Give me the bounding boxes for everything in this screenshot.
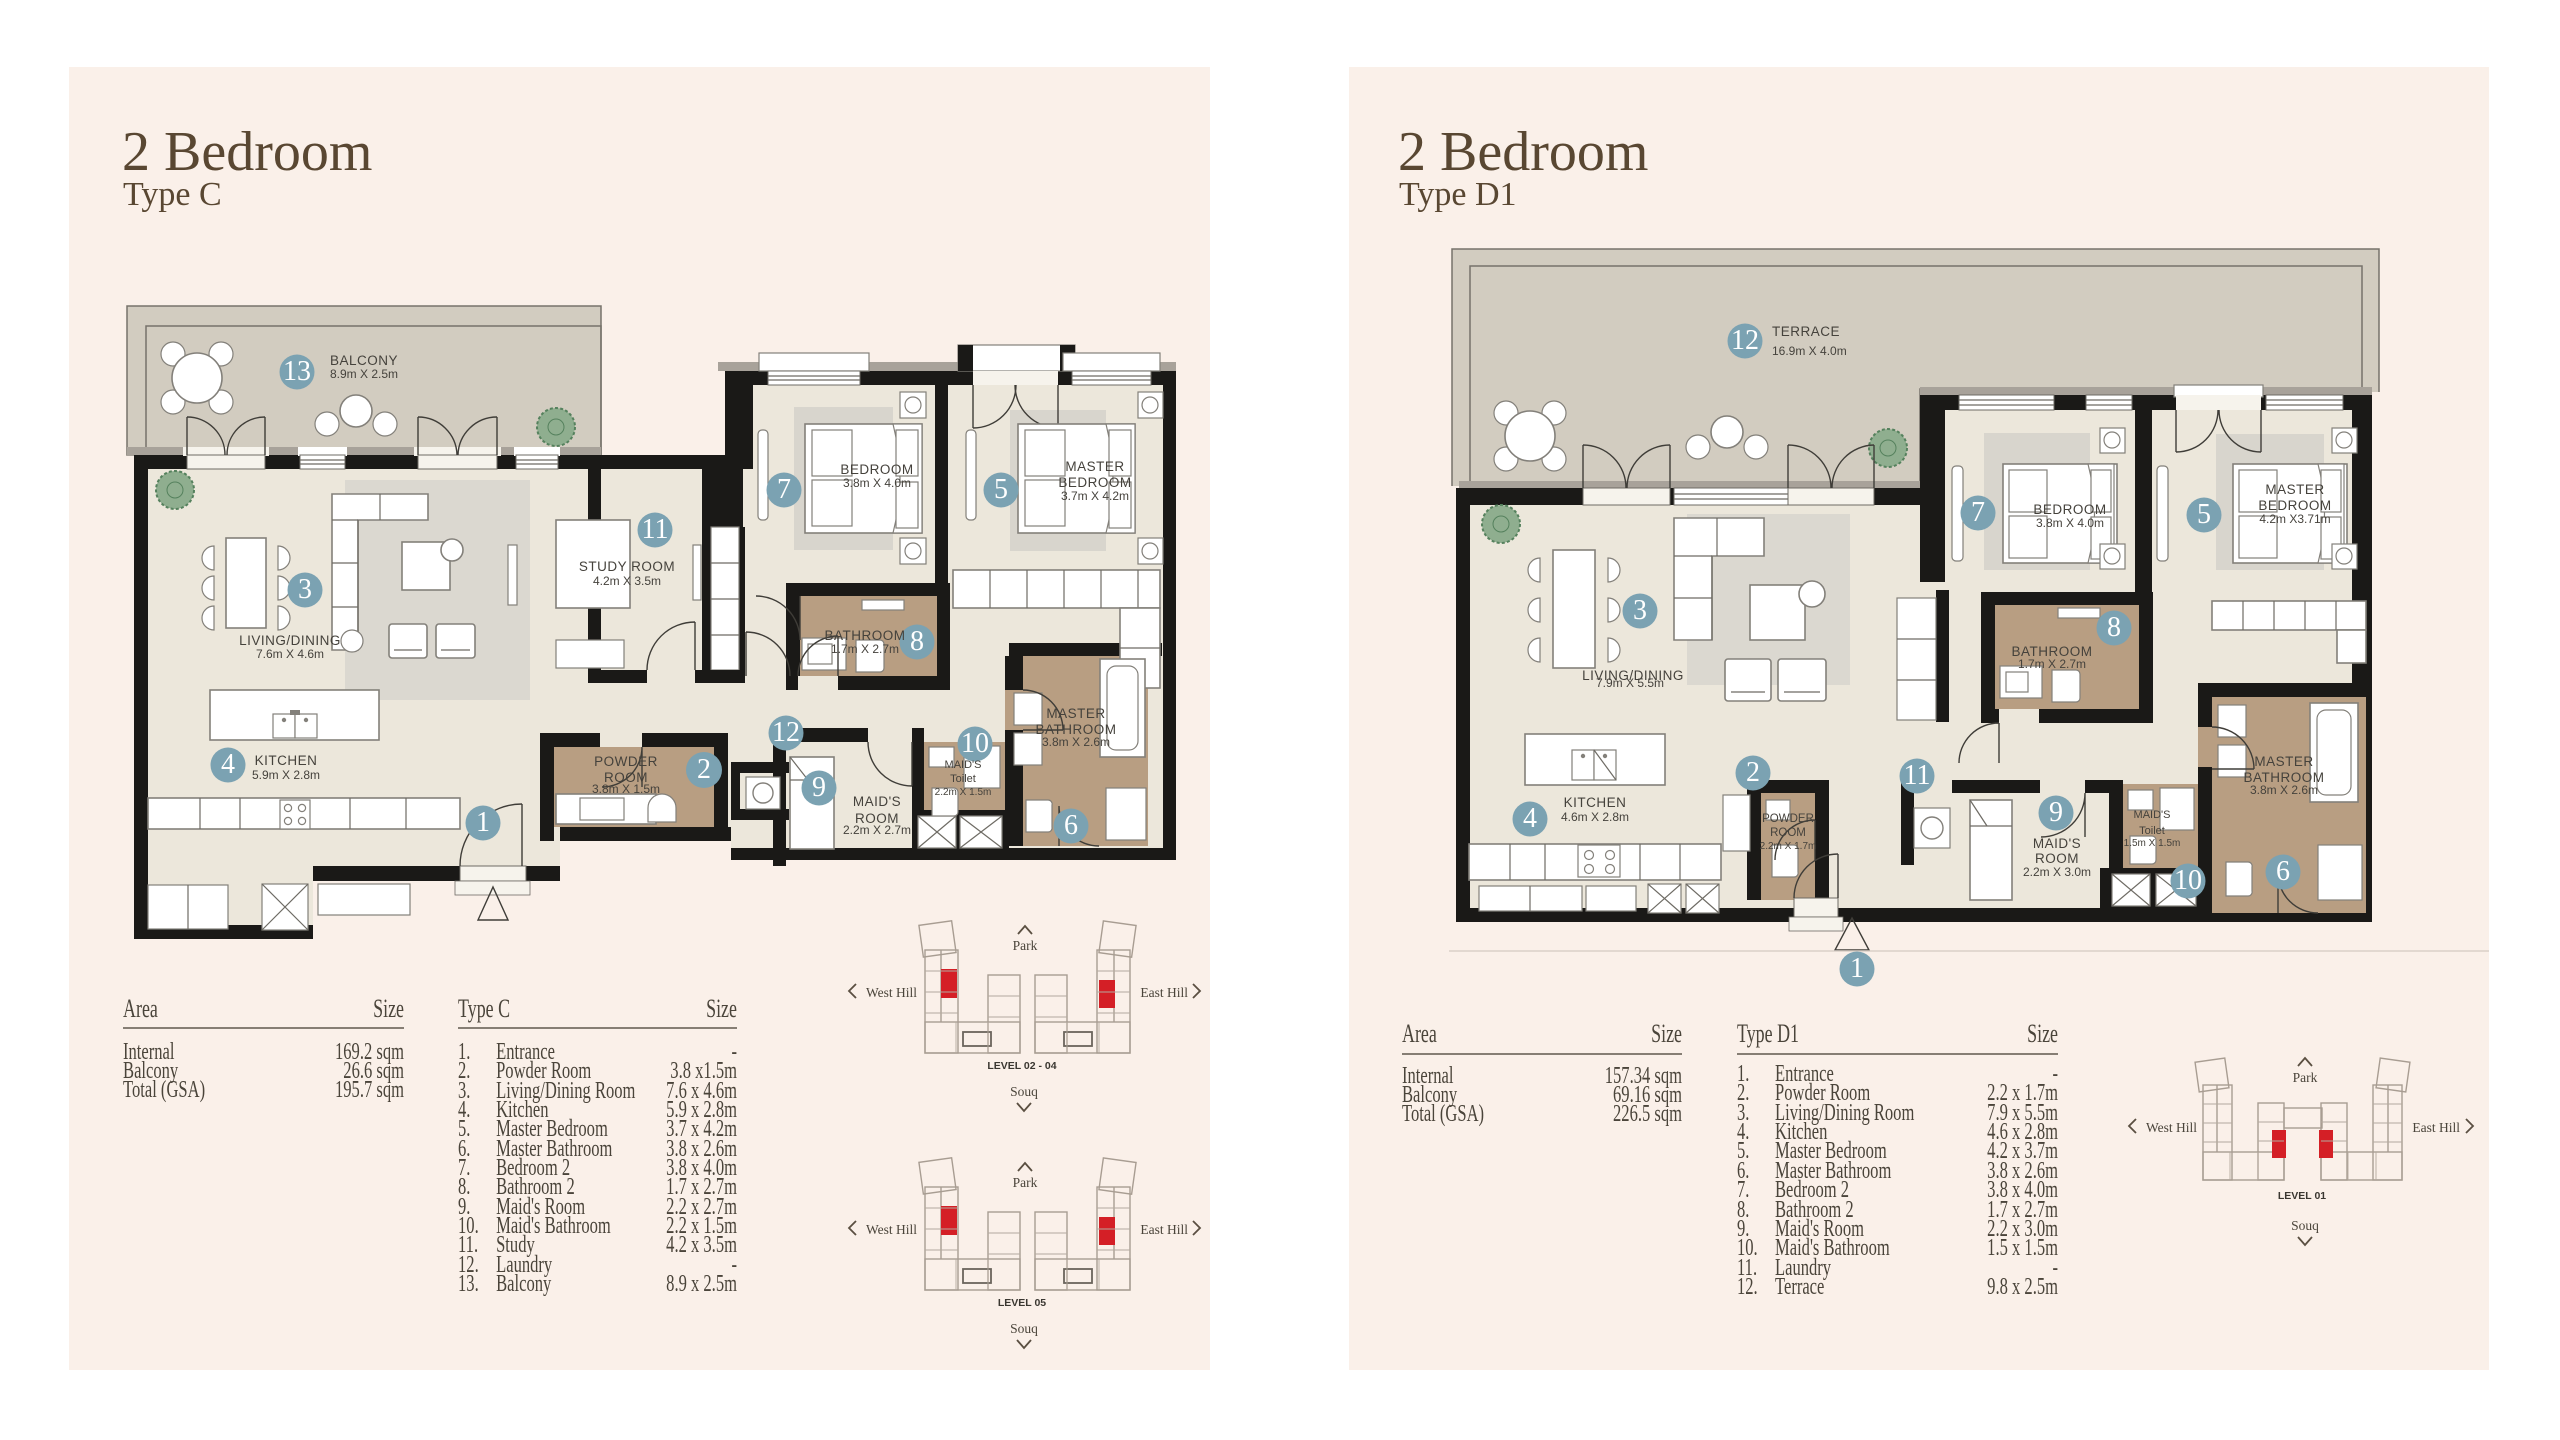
svg-text:POWDER: POWDER (594, 754, 658, 769)
svg-text:Park: Park (1013, 1175, 1038, 1190)
svg-text:LIVING/DINING: LIVING/DINING (239, 633, 341, 648)
svg-text:Size: Size (1651, 1019, 1682, 1048)
svg-text:MAID'S: MAID'S (853, 794, 901, 809)
svg-text:10: 10 (961, 728, 989, 759)
svg-text:Type D1: Type D1 (1737, 1019, 1799, 1048)
svg-text:9: 9 (812, 772, 826, 803)
svg-text:4.2 x 3.5m: 4.2 x 3.5m (666, 1232, 737, 1258)
svg-text:12.: 12. (1737, 1274, 1758, 1300)
svg-text:POWDER: POWDER (1762, 813, 1814, 825)
svg-text:2.2m X 3.0m: 2.2m X 3.0m (2023, 865, 2091, 879)
svg-text:MASTER: MASTER (1065, 459, 1124, 474)
svg-text:ROOM: ROOM (2035, 851, 2079, 866)
svg-text:Type C: Type C (123, 176, 222, 213)
svg-text:Balcony: Balcony (496, 1271, 552, 1297)
svg-text:7.9m X 5.5m: 7.9m X 5.5m (1596, 676, 1664, 690)
svg-text:MAID'S: MAID'S (945, 759, 982, 771)
svg-text:Type C: Type C (458, 994, 510, 1023)
svg-text:5: 5 (994, 474, 1008, 505)
svg-text:Terrace: Terrace (1775, 1274, 1824, 1300)
svg-text:1: 1 (1850, 953, 1864, 984)
svg-text:7: 7 (1971, 497, 1985, 528)
svg-text:West Hill: West Hill (2146, 1120, 2197, 1135)
svg-text:8.9m X 2.5m: 8.9m X 2.5m (330, 367, 398, 381)
svg-text:ROOM: ROOM (1770, 827, 1806, 839)
svg-text:13: 13 (283, 356, 311, 387)
svg-text:5.9m X 2.8m: 5.9m X 2.8m (252, 768, 320, 782)
svg-text:13.: 13. (458, 1271, 479, 1297)
svg-text:12: 12 (772, 717, 800, 748)
svg-text:9: 9 (2049, 797, 2063, 828)
svg-text:1.7m X 2.7m: 1.7m X 2.7m (831, 642, 899, 656)
svg-text:1.5m X 1.5m: 1.5m X 1.5m (2124, 838, 2181, 849)
svg-text:KITCHEN: KITCHEN (255, 753, 318, 768)
svg-text:Size: Size (373, 994, 404, 1023)
svg-text:Size: Size (2027, 1019, 2058, 1048)
svg-text:4: 4 (1523, 803, 1537, 834)
svg-text:Souq: Souq (1010, 1084, 1038, 1099)
svg-text:2 Bedroom: 2 Bedroom (122, 121, 372, 183)
svg-text:195.7 sqm: 195.7 sqm (335, 1077, 404, 1103)
svg-text:BALCONY: BALCONY (330, 353, 398, 368)
svg-text:BEDROOM: BEDROOM (1058, 475, 1131, 490)
svg-text:LEVEL 05: LEVEL 05 (998, 1297, 1046, 1309)
svg-text:Park: Park (1013, 938, 1038, 953)
svg-text:LEVEL 02 - 04: LEVEL 02 - 04 (987, 1060, 1056, 1072)
svg-text:LEVEL 01: LEVEL 01 (2278, 1190, 2326, 1202)
svg-text:11: 11 (642, 514, 669, 545)
svg-text:West Hill: West Hill (866, 985, 917, 1000)
svg-text:STUDY ROOM: STUDY ROOM (579, 559, 675, 574)
svg-text:Area: Area (1402, 1019, 1437, 1048)
svg-text:7: 7 (777, 474, 791, 505)
svg-text:BEDROOM: BEDROOM (2258, 498, 2331, 513)
svg-text:BATHROOM: BATHROOM (825, 628, 906, 643)
svg-text:East Hill: East Hill (1140, 1222, 1188, 1237)
svg-text:1.5 x 1.5m: 1.5 x 1.5m (1987, 1235, 2058, 1261)
svg-text:3.8m X 2.6m: 3.8m X 2.6m (2250, 783, 2318, 797)
svg-text:9.8 x 2.5m: 9.8 x 2.5m (1987, 1274, 2058, 1300)
svg-text:3.8m X 2.6m: 3.8m X 2.6m (1042, 735, 1110, 749)
svg-text:7.6m X 4.6m: 7.6m X 4.6m (256, 647, 324, 661)
svg-text:3.7m X 4.2m: 3.7m X 4.2m (1061, 489, 1129, 503)
svg-text:Area: Area (123, 994, 158, 1023)
svg-text:12: 12 (1731, 325, 1759, 356)
svg-text:Park: Park (2293, 1070, 2318, 1085)
svg-text:Total (GSA): Total (GSA) (123, 1077, 205, 1103)
svg-text:1.7m X 2.7m: 1.7m X 2.7m (2018, 657, 2086, 671)
svg-text:11: 11 (1904, 760, 1931, 791)
svg-text:Toilet: Toilet (950, 773, 976, 785)
svg-text:10: 10 (2174, 865, 2202, 896)
svg-text:226.5 sqm: 226.5 sqm (1613, 1101, 1682, 1127)
svg-text:4: 4 (221, 749, 235, 780)
svg-text:Type D1: Type D1 (1399, 176, 1517, 213)
svg-text:KITCHEN: KITCHEN (1564, 795, 1627, 810)
svg-text:2 Bedroom: 2 Bedroom (1398, 121, 1648, 183)
svg-text:8.9 x 2.5m: 8.9 x 2.5m (666, 1271, 737, 1297)
svg-text:16.9m X 4.0m: 16.9m X 4.0m (1772, 344, 1847, 358)
svg-text:5: 5 (2197, 499, 2211, 530)
svg-text:2.2m X 1.7m: 2.2m X 1.7m (1760, 841, 1817, 852)
svg-text:8: 8 (910, 626, 924, 657)
svg-text:2.2m X 1.5m: 2.2m X 1.5m (935, 787, 992, 798)
svg-text:2: 2 (697, 754, 711, 785)
svg-text:3.8m X 4.0m: 3.8m X 4.0m (2036, 516, 2104, 530)
svg-text:Souq: Souq (2291, 1218, 2319, 1233)
svg-text:West Hill: West Hill (866, 1222, 917, 1237)
svg-text:Total (GSA): Total (GSA) (1402, 1101, 1484, 1127)
svg-text:East Hill: East Hill (2412, 1120, 2460, 1135)
svg-text:1: 1 (476, 807, 490, 838)
svg-text:6: 6 (1064, 810, 1078, 841)
svg-text:BEDROOM: BEDROOM (2033, 502, 2106, 517)
svg-text:4.6m X 2.8m: 4.6m X 2.8m (1561, 810, 1629, 824)
svg-text:BEDROOM: BEDROOM (840, 462, 913, 477)
svg-text:MASTER: MASTER (2265, 482, 2324, 497)
svg-text:2: 2 (1746, 757, 1760, 788)
svg-text:3: 3 (298, 574, 312, 605)
svg-text:3.8m X 4.0m: 3.8m X 4.0m (843, 476, 911, 490)
svg-text:MAID'S: MAID'S (2033, 836, 2081, 851)
svg-text:Souq: Souq (1010, 1321, 1038, 1336)
svg-text:MAID'S: MAID'S (2134, 809, 2171, 821)
svg-text:MASTER: MASTER (2254, 754, 2313, 769)
svg-text:Toilet: Toilet (2139, 825, 2165, 837)
svg-text:4.2m X 3.5m: 4.2m X 3.5m (593, 574, 661, 588)
svg-text:3: 3 (1633, 595, 1647, 626)
svg-text:8: 8 (2107, 612, 2121, 643)
svg-text:TERRACE: TERRACE (1772, 324, 1840, 339)
svg-text:4.2m X3.71m: 4.2m X3.71m (2259, 512, 2330, 526)
svg-text:2.2m X 2.7m: 2.2m X 2.7m (843, 823, 911, 837)
svg-text:6: 6 (2276, 856, 2290, 887)
svg-text:Size: Size (706, 994, 737, 1023)
svg-text:East Hill: East Hill (1140, 985, 1188, 1000)
svg-text:MASTER: MASTER (1046, 706, 1105, 721)
